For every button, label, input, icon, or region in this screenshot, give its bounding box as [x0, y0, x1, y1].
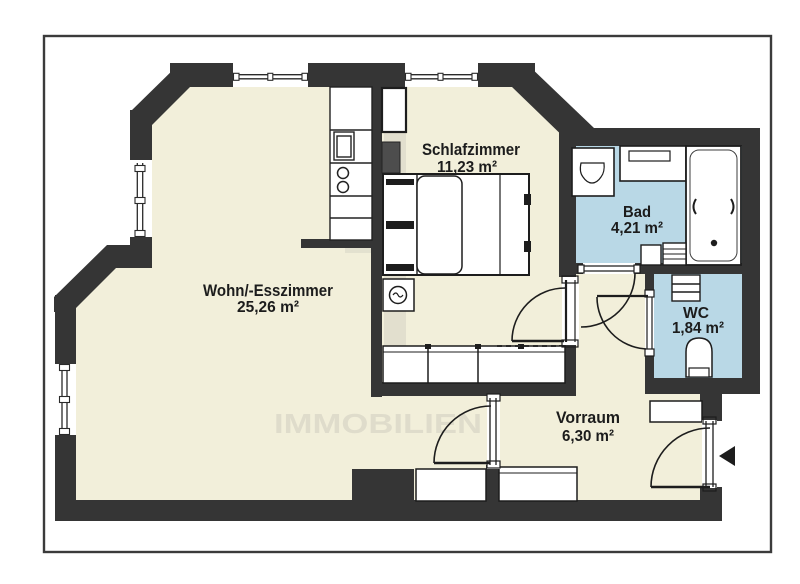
svg-text:1,84 m²: 1,84 m²: [672, 320, 724, 337]
svg-text:Bad: Bad: [623, 204, 651, 221]
svg-text:25,26 m²: 25,26 m²: [237, 299, 299, 316]
svg-text:Schlafzimmer: Schlafzimmer: [422, 140, 520, 159]
svg-text:Vorraum: Vorraum: [556, 408, 620, 427]
svg-text:6,30 m²: 6,30 m²: [562, 428, 614, 445]
svg-text:Wohn/-Esszimmer: Wohn/-Esszimmer: [203, 281, 333, 300]
svg-text:11,23 m²: 11,23 m²: [437, 159, 497, 176]
svg-text:4,21 m²: 4,21 m²: [611, 220, 663, 237]
